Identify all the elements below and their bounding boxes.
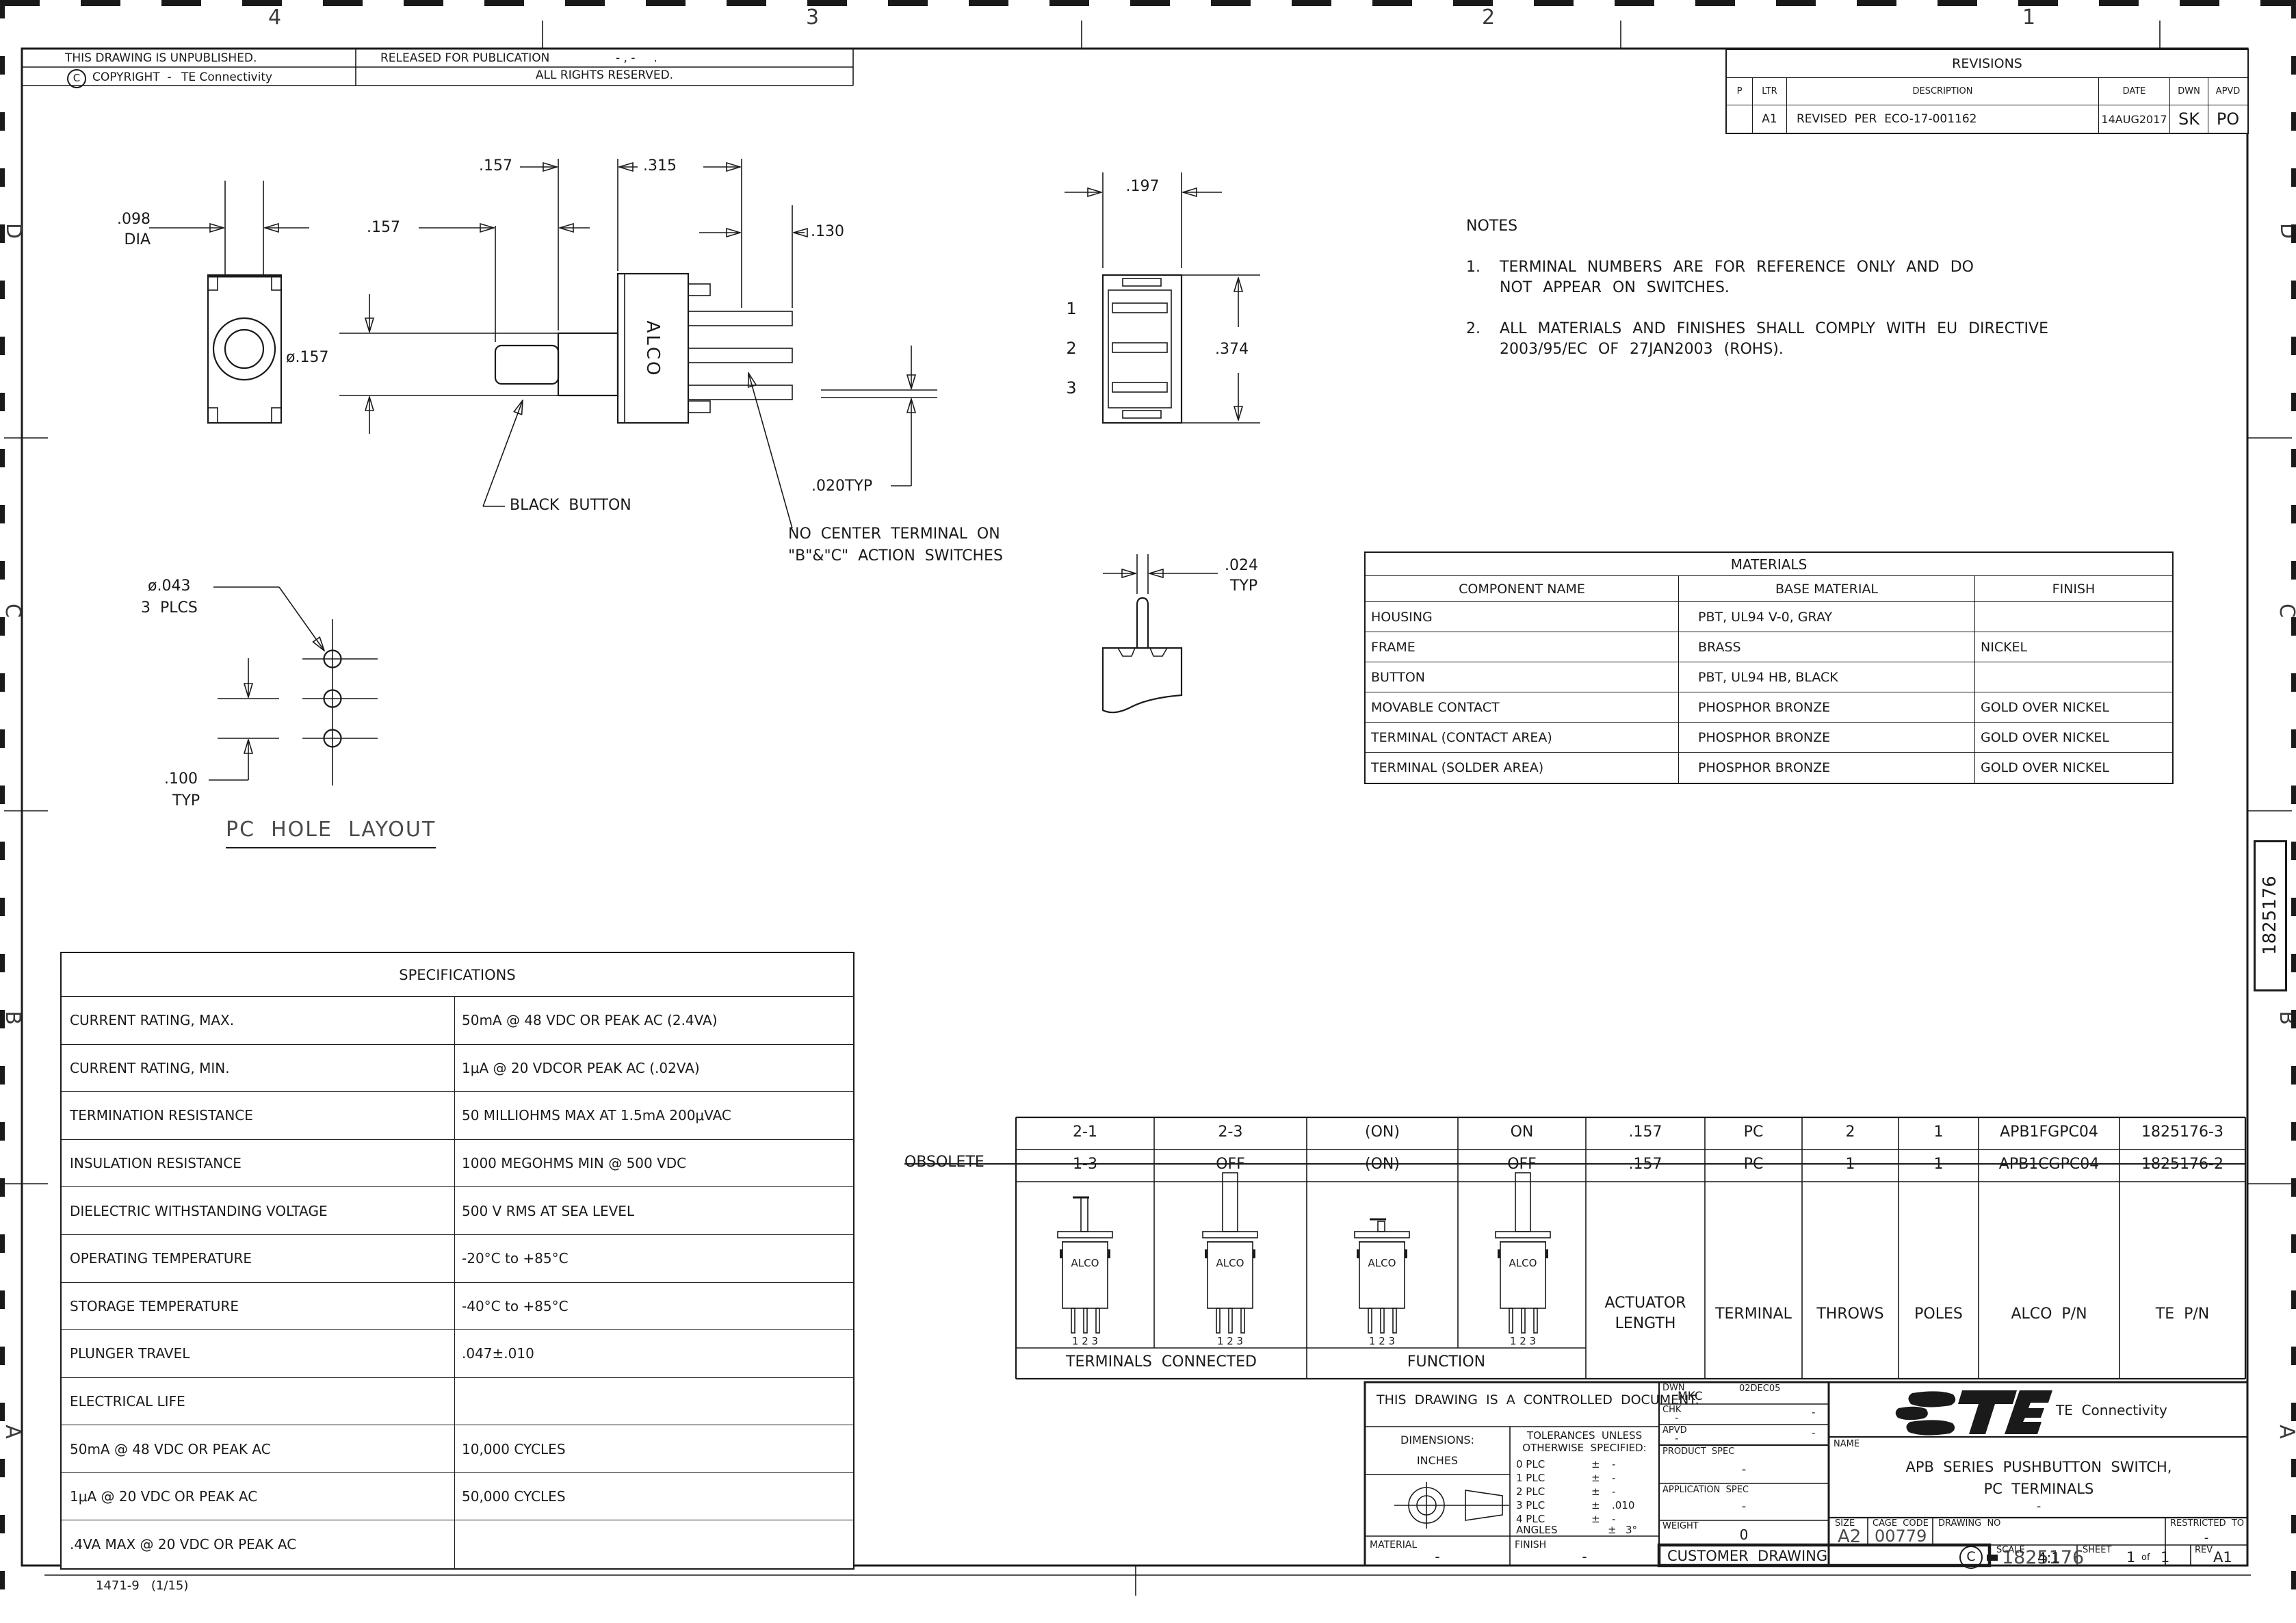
dim-098-dia: DIA (82, 231, 151, 248)
application-spec-label: APPLICATION SPEC (1662, 1485, 1749, 1496)
materials-cell: PBT, UL94 V-0, GRAY (1679, 602, 1975, 632)
zone-letter-left-d: D (1, 223, 25, 239)
icon-4-pins: 1 2 3 (1502, 1336, 1543, 1347)
ft-header-terminals-connected: TERMINALS CONNECTED (1016, 1353, 1307, 1371)
drawing-no-label: DRAWING NO (1938, 1519, 2000, 1529)
materials-col-finish: FINISH (1975, 576, 2172, 602)
copyright-label: COPYRIGHT - (92, 71, 172, 85)
notes-title: NOTES (1466, 218, 1517, 235)
spec-value: 1000 MEGOHMS MIN @ 500 VDC (455, 1140, 853, 1188)
sheet-edge-dashes-top (0, 0, 2296, 6)
restricted-value: - (2165, 1531, 2247, 1546)
spec-label: TERMINATION RESISTANCE (62, 1092, 455, 1140)
materials-cell: TERMINAL (CONTACT AREA) (1366, 723, 1679, 753)
weight-value: 0 (1659, 1527, 1829, 1543)
spec-value: -40°C to +85°C (455, 1283, 853, 1331)
customer-drawing-label: CUSTOMER DRAWING (1667, 1548, 1827, 1564)
materials-cell: HOUSING (1366, 602, 1679, 632)
spec-value: 50mA @ 48 VDC OR PEAK AC (2.4VA) (455, 997, 853, 1045)
drawing-no-prefix: C (1959, 1546, 1983, 1569)
spec-value: 50 MILLIOHMS MAX AT 1.5mA 200μVAC (455, 1092, 853, 1140)
spec-value: -20°C to +85°C (455, 1235, 853, 1283)
spec-value: .047±.010 (455, 1330, 853, 1378)
revisions-col-dwn: DWN (2170, 78, 2208, 105)
icon-1-pins: 1 2 3 (1065, 1336, 1106, 1347)
materials-cell: GOLD OVER NICKEL (1975, 692, 2172, 723)
materials-cell: BUTTON (1366, 662, 1679, 692)
revision-date: 14AUG2017 (2099, 105, 2170, 133)
side-view-brand: ALCO (642, 308, 662, 390)
tol-label: 2 PLC (1516, 1486, 1545, 1498)
revision-ltr: A1 (1753, 105, 1787, 133)
ft-header-poles: POLES (1899, 1306, 1979, 1323)
tol-pm: ± (1591, 1459, 1600, 1470)
tolerances-line-1: TOLERANCES UNLESS (1510, 1430, 1659, 1442)
materials-table: MATERIALS COMPONENT NAME BASE MATERIAL F… (1364, 551, 2174, 784)
zone-number-2: 2 (1482, 5, 1495, 29)
ft-header-actuator-2: LENGTH (1586, 1315, 1705, 1332)
restricted-label: RESTRICTED TO (2170, 1519, 2244, 1529)
finish-value: - (1510, 1549, 1659, 1565)
tol-label: 1 PLC (1516, 1472, 1545, 1484)
tol-value: - (1612, 1459, 1615, 1470)
revisions-title: REVISIONS (1727, 50, 2247, 78)
product-spec-label: PRODUCT SPEC (1662, 1447, 1734, 1457)
spec-label: .4VA MAX @ 20 VDC OR PEAK AC (62, 1520, 455, 1568)
ft-r1-throws: 2 (1802, 1124, 1899, 1141)
materials-cell: TERMINAL (SOLDER AREA) (1366, 753, 1679, 783)
engineering-drawing-sheet: 4 3 2 1 D C B A D C B A 1825176 (0, 0, 2296, 1623)
spec-label: INSULATION RESISTANCE (62, 1140, 455, 1188)
revisions-col-description: DESCRIPTION (1787, 78, 2099, 105)
apvd-value: - (1675, 1433, 1678, 1444)
spec-value (455, 1520, 853, 1568)
ft-header-terminal: TERMINAL (1705, 1306, 1802, 1323)
ft-r1-actuator: .157 (1586, 1124, 1705, 1141)
specifications-table: SPECIFICATIONS CURRENT RATING, MAX. 50mA… (60, 952, 855, 1570)
dim-3plcs: 3 PLCS (141, 599, 198, 616)
drawing-number: C1825176 (1940, 1529, 2084, 1587)
switch-icon-3 (1355, 1219, 1409, 1333)
cage-code-value: 00779 (1875, 1527, 1927, 1546)
pc-hole-layout-view (209, 587, 378, 785)
tol-value: .010 (1612, 1500, 1634, 1511)
dim-100-typ: TYP (172, 792, 200, 809)
spec-label: 1μA @ 20 VDC OR PEAK AC (62, 1473, 455, 1521)
zone-number-4: 4 (268, 5, 281, 29)
materials-col-component: COMPONENT NAME (1366, 576, 1679, 602)
drawing-name-3: - (1847, 1500, 2230, 1514)
specifications-title: SPECIFICATIONS (62, 953, 853, 997)
dwn-date: 02DEC05 (1739, 1384, 1780, 1394)
no-center-terminal-line-1: NO CENTER TERMINAL ON (788, 525, 1000, 543)
copyright-symbol: C (67, 69, 86, 88)
released-note: RELEASED FOR PUBLICATION (380, 52, 549, 66)
ft-r1-te-pn: 1825176-3 (2119, 1124, 2245, 1141)
materials-cell: PBT, UL94 HB, BLACK (1679, 662, 1975, 692)
materials-cell: MOVABLE CONTACT (1366, 692, 1679, 723)
spec-value: 50,000 CYCLES (455, 1473, 853, 1521)
revision-p (1727, 105, 1753, 133)
terminal-detail-view (1103, 554, 1218, 712)
dim-phi043: ø.043 (148, 577, 190, 595)
dim-157-flange: .157 (479, 157, 512, 174)
revision-description: REVISED PER ECO-17-001162 (1787, 105, 2099, 133)
icon-3-pins: 1 2 3 (1361, 1336, 1403, 1347)
tol-value: 3° (1626, 1524, 1637, 1536)
dim-020typ: .020TYP (811, 478, 872, 495)
note-1-number: 1. (1466, 259, 1480, 276)
dimensions-label: DIMENSIONS: (1365, 1434, 1510, 1446)
materials-cell: GOLD OVER NICKEL (1975, 753, 2172, 783)
tolerances-line-2: OTHERWISE SPECIFIED: (1510, 1442, 1659, 1454)
tol-pm: ± (1608, 1524, 1617, 1536)
materials-cell (1975, 662, 2172, 692)
sheet-of: of (2141, 1553, 2150, 1563)
note-2-number: 2. (1466, 320, 1480, 337)
spec-label: DIELECTRIC WITHSTANDING VOLTAGE (62, 1187, 455, 1235)
icon-1-brand: ALCO (1065, 1258, 1106, 1269)
tol-label: 0 PLC (1516, 1459, 1545, 1470)
tol-pm: ± (1591, 1472, 1600, 1484)
ft-r1-terminal: PC (1705, 1124, 1802, 1141)
spec-label: OPERATING TEMPERATURE (62, 1235, 455, 1283)
rear-terminal-1: 1 (1059, 300, 1084, 319)
revisions-col-p: P (1727, 78, 1753, 105)
icon-4-brand: ALCO (1502, 1258, 1543, 1269)
dim-315-body: .315 (643, 157, 677, 174)
zone-number-3: 3 (806, 5, 819, 29)
drawing-name-2: PC TERMINALS (1847, 1481, 2230, 1497)
side-view (339, 159, 937, 528)
obsolete-label: OBSOLETE (904, 1154, 984, 1171)
revision-apvd: PO (2208, 105, 2247, 133)
obsolete-strikethrough (904, 1163, 2245, 1165)
note-2-line-1: ALL MATERIALS AND FINISHES SHALL COMPLY … (1500, 320, 2048, 337)
icon-2-brand: ALCO (1210, 1258, 1251, 1269)
tol-value: - (1612, 1472, 1615, 1484)
rear-view (1065, 172, 1260, 423)
ft-r1-function-b: ON (1458, 1124, 1586, 1141)
unpublished-note: THIS DRAWING IS UNPUBLISHED. (65, 52, 257, 66)
dim-197: .197 (1108, 178, 1177, 195)
drawing-number-side-tab: 1825176 (2254, 840, 2287, 991)
icon-2-pins: 1 2 3 (1210, 1336, 1251, 1347)
ft-r1-alco-pn: APB1FGPC04 (1979, 1124, 2119, 1141)
black-button-label: BLACK BUTTON (510, 497, 631, 514)
dimensions-unit: INCHES (1365, 1455, 1510, 1467)
side-tab-number: 1825176 (2260, 876, 2280, 955)
rear-terminal-3: 3 (1059, 379, 1084, 398)
scale-value: 4:1 (2037, 1550, 2061, 1566)
revisions-table: REVISIONS P LTR DESCRIPTION DATE DWN APV… (1725, 49, 2249, 134)
spec-label: ELECTRICAL LIFE (62, 1378, 455, 1426)
pc-hole-layout-title: PC HOLE LAYOUT (226, 818, 436, 848)
spec-label: 50mA @ 48 VDC OR PEAK AC (62, 1425, 455, 1473)
materials-cell: FRAME (1366, 632, 1679, 662)
dim-130-pin: .130 (811, 223, 844, 240)
ft-r1-terminals-b: 2-3 (1154, 1124, 1307, 1141)
dim-374: .374 (1212, 341, 1251, 358)
te-logo (1896, 1390, 2052, 1436)
spec-label: PLUNGER TRAVEL (62, 1330, 455, 1378)
materials-cell: PHOSPHOR BRONZE (1679, 723, 1975, 753)
sheet-label: SHEET (2083, 1546, 2111, 1556)
sheet-value: 1 (2126, 1549, 2135, 1566)
spec-value: 500 V RMS AT SEA LEVEL (455, 1187, 853, 1235)
size-value: A2 (1838, 1527, 1861, 1548)
note-1-line-1: TERMINAL NUMBERS ARE FOR REFERENCE ONLY … (1500, 259, 1974, 276)
tol-pm: ± (1591, 1500, 1600, 1511)
rights-note: ALL RIGHTS RESERVED. (356, 69, 853, 83)
dim-157-button: .157 (367, 219, 400, 236)
spec-label: CURRENT RATING, MAX. (62, 997, 455, 1045)
spec-value: 10,000 CYCLES (455, 1425, 853, 1473)
revisions-col-ltr: LTR (1753, 78, 1787, 105)
material-value: - (1365, 1549, 1510, 1565)
materials-cell: PHOSPHOR BRONZE (1679, 753, 1975, 783)
ft-r1-terminals-a: 2-1 (1016, 1124, 1154, 1141)
spec-label: STORAGE TEMPERATURE (62, 1283, 455, 1331)
materials-cell: PHOSPHOR BRONZE (1679, 692, 1975, 723)
note-1-line-2: NOT APPEAR ON SWITCHES. (1500, 279, 1730, 296)
form-number: 1471-9 (1/15) (96, 1579, 188, 1594)
materials-cell: NICKEL (1975, 632, 2172, 662)
ft-header-alco-pn: ALCO P/N (1979, 1306, 2119, 1323)
no-center-terminal-line-2: "B"&"C" ACTION SWITCHES (788, 547, 1003, 564)
dim-098: .098 (82, 211, 151, 228)
tol-pm: ± (1591, 1514, 1600, 1525)
front-view (149, 181, 309, 423)
dim-100: .100 (164, 770, 198, 788)
name-label: NAME (1834, 1440, 1860, 1450)
company-name: TE Connectivity (2056, 1403, 2167, 1418)
chk-right: - (1812, 1407, 1815, 1418)
tol-pm: ± (1591, 1486, 1600, 1498)
dim-024-typ: TYP (1230, 577, 1257, 595)
copyright-company: TE Connectivity (181, 71, 272, 85)
materials-cell: GOLD OVER NICKEL (1975, 723, 2172, 753)
product-spec-value: - (1659, 1463, 1829, 1477)
revisions-col-apvd: APVD (2208, 78, 2247, 105)
ft-header-actuator-1: ACTUATOR (1586, 1295, 1705, 1312)
chk-value: - (1675, 1412, 1678, 1424)
icon-3-brand: ALCO (1361, 1258, 1403, 1269)
switch-icon-4 (1496, 1173, 1550, 1333)
sheet-edge-dashes-right (2291, 0, 2296, 1623)
tol-label: 3 PLC (1516, 1500, 1545, 1511)
scale-label: SCALE (1996, 1546, 2025, 1556)
spec-value: 1μA @ 20 VDCOR PEAK AC (.02VA) (455, 1045, 853, 1093)
materials-cell (1975, 602, 2172, 632)
ft-r1-function-a: (ON) (1307, 1124, 1458, 1141)
ft-r1-poles: 1 (1899, 1124, 1979, 1141)
rev-label: REV (2195, 1546, 2213, 1556)
sheet-total: 1 (2161, 1549, 2169, 1566)
zone-number-1: 1 (2022, 5, 2035, 29)
ft-header-function: FUNCTION (1307, 1353, 1586, 1371)
dwn-value: MKC (1678, 1390, 1703, 1404)
controlled-document-note: THIS DRAWING IS A CONTROLLED DOCUMENT. (1377, 1393, 1699, 1408)
materials-title: MATERIALS (1366, 553, 2172, 576)
spec-value (455, 1378, 853, 1426)
spec-label: CURRENT RATING, MIN. (62, 1045, 455, 1093)
revisions-col-date: DATE (2099, 78, 2170, 105)
ft-header-te-pn: TE P/N (2119, 1306, 2245, 1323)
tol-value: - (1612, 1486, 1615, 1498)
ft-header-throws: THROWS (1802, 1306, 1899, 1323)
released-date: - , - . (616, 52, 657, 66)
rev-value: A1 (2213, 1549, 2232, 1566)
dim-phi157: ø.157 (286, 349, 328, 366)
sheet-edge-dashes-left (0, 0, 5, 1623)
rear-terminal-2: 2 (1059, 339, 1084, 359)
note-2-line-2: 2003/95/EC OF 27JAN2003 (ROHS). (1500, 341, 1784, 358)
materials-cell: BRASS (1679, 632, 1975, 662)
revision-dwn: SK (2170, 105, 2208, 133)
tol-label: ANGLES (1516, 1524, 1557, 1536)
application-spec-value: - (1659, 1500, 1829, 1514)
materials-col-base-material: BASE MATERIAL (1679, 576, 1975, 602)
dim-024: .024 (1225, 557, 1258, 574)
apvd-right: - (1812, 1427, 1815, 1439)
drawing-name-1: APB SERIES PUSHBUTTON SWITCH, (1847, 1459, 2230, 1475)
switch-icon-2 (1203, 1173, 1257, 1333)
